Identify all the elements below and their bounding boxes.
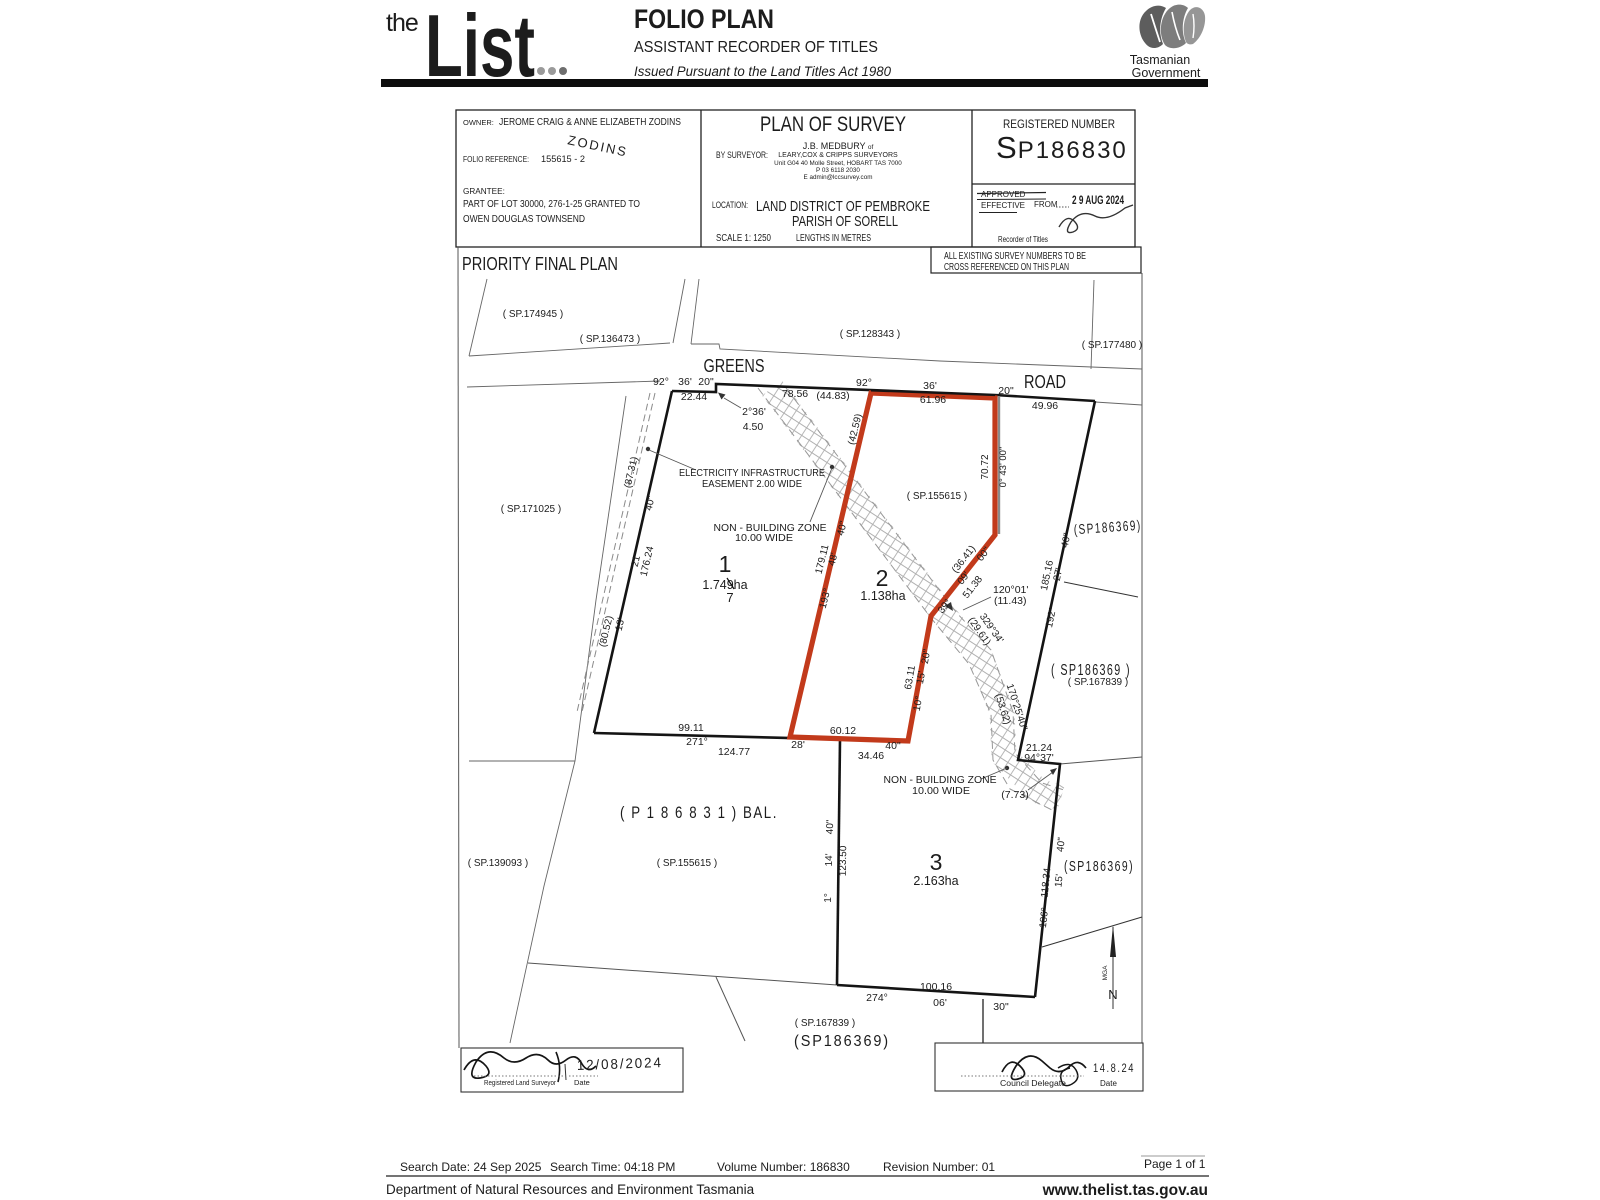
svg-text:BY SURVEYOR:: BY SURVEYOR:: [716, 150, 768, 161]
svg-text:40": 40": [835, 520, 849, 537]
svg-text:192°: 192°: [1044, 606, 1059, 629]
svg-text:Page 1 of 1: Page 1 of 1: [1144, 1157, 1206, 1171]
svg-text:( SP.171025 ): ( SP.171025 ): [501, 504, 561, 515]
svg-text:118.34: 118.34: [1039, 867, 1053, 898]
svg-text:N: N: [1108, 987, 1117, 1002]
svg-text:( SP.128343 ): ( SP.128343 ): [840, 329, 900, 340]
svg-text:( SP186369 ): ( SP186369 ): [1051, 662, 1131, 679]
svg-text:(SP186369): (SP186369): [794, 1033, 890, 1050]
svg-text:(44.83): (44.83): [816, 390, 849, 402]
svg-text:14.8.24: 14.8.24: [1093, 1061, 1135, 1075]
svg-text:ROAD: ROAD: [1024, 371, 1066, 392]
svg-text:( SP.174945 ): ( SP.174945 ): [503, 309, 563, 320]
svg-text:30": 30": [993, 1001, 1009, 1013]
svg-text:92°: 92°: [653, 376, 669, 388]
svg-text:ASSISTANT RECORDER OF TITLES: ASSISTANT RECORDER OF TITLES: [634, 39, 878, 56]
svg-text:(SP186369): (SP186369): [1073, 517, 1142, 538]
svg-text:Search Time: 04:18 PM: Search Time: 04:18 PM: [550, 1160, 675, 1174]
svg-text:J.B. MEDBURY of: J.B. MEDBURY of: [803, 141, 874, 151]
svg-text:SP186830: SP186830: [996, 130, 1128, 165]
svg-text:ELECTRICITY INFRASTRUCTURE: ELECTRICITY INFRASTRUCTURE: [679, 468, 825, 479]
svg-text:( SP.155615 ): ( SP.155615 ): [657, 858, 717, 869]
svg-text:2°36': 2°36': [742, 406, 766, 418]
svg-text:1: 1: [719, 551, 732, 577]
svg-text:1.749ha: 1.749ha: [702, 578, 747, 592]
svg-text:124.77: 124.77: [718, 746, 750, 758]
svg-text:Department of Natural Resource: Department of Natural Resources and Envi…: [386, 1182, 755, 1197]
svg-text:92°: 92°: [856, 377, 872, 389]
svg-text:the: the: [386, 9, 418, 37]
svg-text:(7.73): (7.73): [1001, 789, 1028, 801]
svg-text:MGA: MGA: [1102, 965, 1109, 980]
svg-text:FROM: FROM: [1034, 200, 1058, 209]
svg-text:3: 3: [930, 849, 943, 875]
svg-text:PART OF LOT 30000, 276-1-25 GR: PART OF LOT 30000, 276-1-25 GRANTED TO: [463, 199, 640, 210]
svg-text:22.44: 22.44: [681, 391, 707, 403]
svg-text:Issued Pursuant to the Land Ti: Issued Pursuant to the Land Titles Act 1…: [634, 64, 891, 79]
svg-text:REGISTERED NUMBER: REGISTERED NUMBER: [1003, 119, 1115, 131]
svg-text:Tasmanian: Tasmanian: [1130, 53, 1190, 67]
svg-text:Council Delegate: Council Delegate: [1000, 1079, 1067, 1088]
svg-text:2 9 AUG 2024: 2 9 AUG 2024: [1072, 195, 1124, 207]
svg-text:Unit G04 40 Molle Street, HOBA: Unit G04 40 Molle Street, HOBART TAS 700…: [774, 160, 902, 167]
svg-text:PARISH OF SORELL: PARISH OF SORELL: [792, 213, 898, 230]
svg-text:E admin@lccsurvey.com: E admin@lccsurvey.com: [804, 174, 873, 181]
svg-text:PLAN OF SURVEY: PLAN OF SURVEY: [760, 113, 906, 136]
svg-text:(80.52): (80.52): [598, 615, 616, 648]
svg-text:20": 20": [698, 376, 714, 388]
svg-text:99.11: 99.11: [678, 722, 704, 734]
svg-text:13': 13': [614, 617, 628, 632]
svg-text:176.24: 176.24: [639, 545, 657, 578]
svg-text:40": 40": [644, 495, 658, 512]
svg-text:Recorder of Titles: Recorder of Titles: [998, 234, 1048, 244]
svg-text:7: 7: [726, 590, 735, 605]
svg-text:Volume Number: 186830: Volume Number: 186830: [717, 1160, 850, 1174]
svg-text:FOLIO PLAN: FOLIO PLAN: [634, 4, 774, 34]
svg-text:60.12: 60.12: [830, 725, 856, 737]
svg-text:SCALE 1: 1250: SCALE 1: 1250: [716, 233, 771, 244]
svg-text:06': 06': [933, 997, 947, 1009]
svg-text:36': 36': [923, 380, 937, 392]
svg-text:EFFECTIVE: EFFECTIVE: [981, 201, 1025, 210]
svg-text:LOCATION:: LOCATION:: [712, 200, 748, 211]
svg-text:Government: Government: [1132, 66, 1201, 80]
svg-text:40": 40": [1055, 836, 1068, 852]
svg-text:10°: 10°: [912, 695, 925, 712]
svg-text:Search Date: 24 Sep 2025: Search Date: 24 Sep 2025: [400, 1160, 542, 1174]
svg-text:(11.43): (11.43): [994, 595, 1027, 607]
svg-text:4.50: 4.50: [743, 421, 764, 433]
svg-text:PRIORITY FINAL PLAN: PRIORITY FINAL PLAN: [462, 254, 618, 274]
svg-text:20": 20": [998, 385, 1014, 397]
svg-text:1.138ha: 1.138ha: [860, 589, 905, 603]
svg-text:Date: Date: [574, 1078, 590, 1087]
svg-text:274°: 274°: [866, 992, 888, 1004]
svg-text:193°: 193°: [818, 587, 834, 610]
svg-text:www.thelist.tas.gov.au: www.thelist.tas.gov.au: [1042, 1182, 1208, 1199]
svg-text:( SP.139093 ): ( SP.139093 ): [468, 858, 528, 869]
svg-text:CROSS REFERENCED ON THIS PLAN: CROSS REFERENCED ON THIS PLAN: [944, 261, 1069, 273]
svg-text:0° 43' 00": 0° 43' 00": [998, 447, 1009, 488]
svg-text:100.16: 100.16: [920, 981, 952, 993]
svg-text:27': 27': [1052, 567, 1065, 582]
svg-text:( SP.155615 ): ( SP.155615 ): [907, 491, 967, 502]
svg-text:( SP.136473 ): ( SP.136473 ): [580, 334, 640, 345]
svg-text:10.00 WIDE: 10.00 WIDE: [912, 786, 970, 797]
svg-text:APPROVED: APPROVED: [981, 190, 1026, 199]
svg-text:Date: Date: [1100, 1079, 1117, 1088]
svg-text:49.96: 49.96: [1032, 400, 1058, 412]
svg-text:12/08/2024: 12/08/2024: [577, 1054, 664, 1073]
svg-text:( SP.167839 ): ( SP.167839 ): [795, 1018, 855, 1029]
svg-text:(87.31): (87.31): [623, 456, 641, 489]
svg-text:123.50: 123.50: [838, 845, 850, 876]
svg-text:P 03 6118 2030: P 03 6118 2030: [816, 167, 860, 174]
svg-text:14': 14': [824, 853, 835, 866]
svg-text:NON - BUILDING ZONE: NON - BUILDING ZONE: [884, 775, 997, 786]
svg-text:15': 15': [1053, 874, 1065, 888]
svg-text:155615 - 2: 155615 - 2: [541, 154, 585, 164]
svg-text:34.46: 34.46: [858, 750, 884, 762]
svg-text:48': 48': [827, 552, 841, 567]
svg-text:( SP.177480 ): ( SP.177480 ): [1082, 340, 1142, 351]
svg-text:EASEMENT 2.00 WIDE: EASEMENT 2.00 WIDE: [702, 479, 802, 490]
svg-text:271°: 271°: [686, 736, 708, 748]
svg-text:40": 40": [825, 819, 836, 834]
svg-text:OWNER:: OWNER:: [463, 118, 494, 127]
svg-text:LEARY,COX & CRIPPS SURVEYORS: LEARY,COX & CRIPPS SURVEYORS: [778, 152, 898, 159]
svg-text:OWEN DOUGLAS TOWNSEND: OWEN DOUGLAS TOWNSEND: [463, 214, 585, 225]
svg-text:28': 28': [791, 739, 805, 751]
svg-text:10.00 WIDE: 10.00 WIDE: [735, 533, 793, 544]
svg-text:94°37': 94°37': [1024, 752, 1054, 764]
svg-text:40": 40": [1060, 532, 1074, 549]
svg-text:Registered Land Surveyor: Registered Land Surveyor: [484, 1078, 556, 1087]
svg-text:(SP186369): (SP186369): [1064, 859, 1134, 875]
svg-text:GREENS: GREENS: [704, 355, 765, 376]
svg-text:2: 2: [876, 565, 889, 591]
svg-text:78.56: 78.56: [782, 388, 808, 400]
svg-text:1°: 1°: [823, 893, 834, 903]
svg-text:LENGTHS IN METRES: LENGTHS IN METRES: [796, 233, 871, 244]
svg-text:2.163ha: 2.163ha: [913, 874, 958, 888]
svg-text:GRANTEE:: GRANTEE:: [463, 187, 505, 196]
svg-text:FOLIO REFERENCE:: FOLIO REFERENCE:: [463, 155, 529, 164]
svg-text:( P 1 8 6 8 3 1 ) BAL.: ( P 1 8 6 8 3 1 ) BAL.: [620, 803, 778, 822]
svg-text:70.72: 70.72: [980, 454, 991, 479]
svg-text:36': 36': [678, 376, 692, 388]
svg-text:20": 20": [920, 648, 933, 665]
svg-text:61.96: 61.96: [920, 394, 946, 406]
svg-text:186°: 186°: [1038, 907, 1051, 929]
svg-text:JEROME CRAIG & ANNE ELIZABETH: JEROME CRAIG & ANNE ELIZABETH ZODINS: [499, 117, 681, 128]
svg-text:40": 40": [885, 740, 901, 752]
svg-text:15': 15': [915, 670, 928, 685]
svg-text:Revision Number: 01: Revision Number: 01: [883, 1160, 995, 1174]
